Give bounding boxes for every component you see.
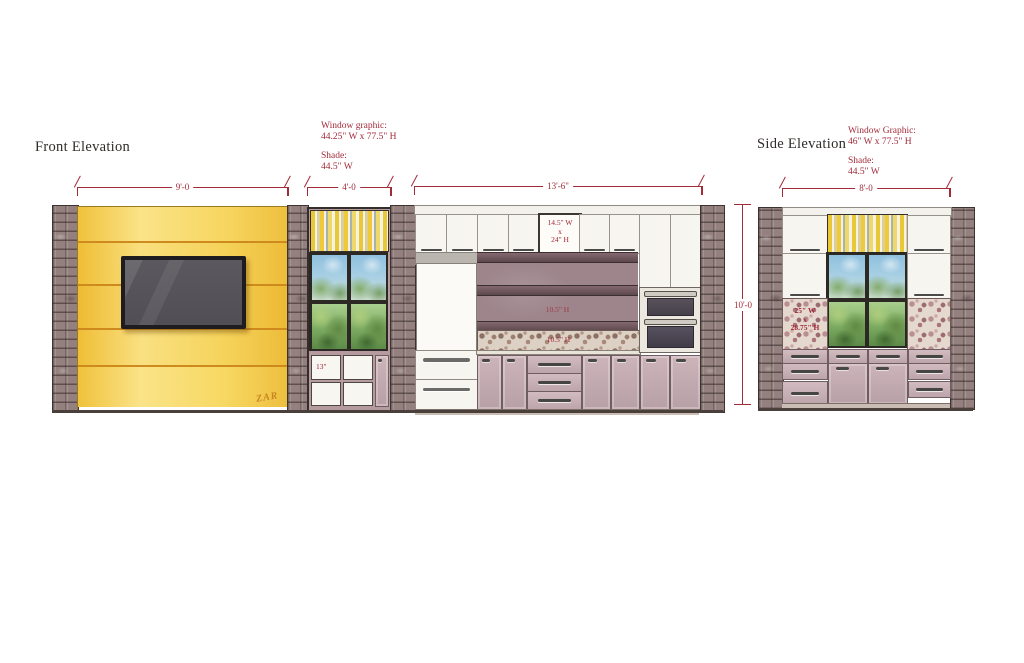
window-bay: 13" [307, 207, 394, 412]
stone-column [758, 207, 784, 410]
display-cabinet: 14.5" W x 24" H [538, 213, 582, 257]
mosaic-panel [907, 298, 951, 350]
upper-cabinet-door [782, 215, 828, 254]
stone-column [390, 205, 416, 413]
window-pane [311, 303, 348, 350]
floor-line [52, 410, 723, 413]
stone-column [700, 205, 725, 413]
base-drawer [527, 391, 582, 410]
base-drawer [782, 363, 828, 380]
tall-cabinet-door [670, 214, 702, 289]
cubby: 13" [311, 355, 341, 380]
base-cabinet-door [611, 355, 640, 410]
dimension-label: 8'-0 [855, 183, 877, 194]
yellow-plank-wall: ZAR [77, 206, 289, 412]
upper-cabinet-door [415, 214, 447, 254]
front-window-graphic-label: Window graphic: [321, 121, 397, 132]
shelf-board [477, 252, 638, 263]
tall-cabinet-door [639, 214, 671, 289]
window-pane [868, 301, 906, 347]
dimension-label: 10'-0 [732, 299, 754, 311]
window-pane [311, 254, 348, 301]
upper-cabinet-door [579, 214, 610, 254]
cubby-width-label: 13" [316, 363, 327, 372]
base-drawer [908, 381, 951, 398]
front-shade-label: Shade: [321, 151, 397, 162]
base-cabinet-door [502, 355, 527, 410]
base-drawer [908, 349, 951, 364]
elevation-drawing-sheet: Front Elevation Window graphic: 44.25" W… [0, 0, 1024, 663]
front-window-annotation: Window graphic: 44.25" W x 77.5" H Shade… [321, 121, 397, 173]
side-window-graphic-label: Window Graphic: [848, 126, 916, 137]
pebble-backsplash: 10.5" H [477, 330, 640, 352]
oven-handle [644, 319, 697, 325]
upper-cabinet-door [446, 214, 478, 254]
wall-mounted-tv [121, 256, 246, 329]
upper-cabinet-door [508, 214, 539, 254]
dimension-kitchen-width: 13'-6" [414, 186, 702, 187]
shelf-height-label: 10.5" H [477, 306, 638, 315]
window-pane [828, 301, 866, 347]
four-pane-window [309, 252, 388, 351]
oven-handle [644, 291, 697, 297]
base-cabinet-door [640, 355, 670, 410]
side-shade-label: Shade: [848, 156, 916, 167]
base-cabinet-door [582, 355, 611, 410]
double-oven-unit [639, 287, 702, 353]
floor-line [758, 408, 973, 411]
front-window-graphic-value: 44.25" W x 77.5" H [321, 132, 397, 143]
bay-side-door [375, 355, 389, 407]
cubby [343, 355, 373, 380]
display-cabinet-height-label: 24" H [540, 236, 580, 245]
stone-column [52, 205, 79, 413]
base-cabinet-door [828, 363, 868, 405]
cubby [343, 382, 373, 406]
side-shade-value: 44.5" W [848, 167, 916, 178]
shelf-board [477, 285, 638, 296]
dimension-media-wall-width: 9'-0 [77, 187, 288, 188]
dimension-window-bay-width: 4'-0 [307, 187, 391, 188]
oven-window [647, 326, 694, 348]
base-cabinet-door [477, 355, 502, 410]
upper-cabinet-door [907, 253, 951, 299]
fridge-drawer [415, 379, 478, 411]
base-drawer [828, 349, 868, 364]
window-pane [350, 254, 387, 301]
dimension-side-wall-height: 10'-0 [742, 205, 743, 404]
base-drawer [527, 355, 582, 374]
upper-cabinet-door [477, 214, 509, 254]
mosaic-height-label: 28.75" H [783, 324, 827, 333]
base-cabinet-door [868, 363, 908, 405]
base-drawer [782, 381, 828, 405]
base-drawer [782, 349, 828, 364]
upper-cabinet-door [609, 214, 640, 254]
cubby [311, 382, 341, 406]
front-shade-value: 44.5" W [321, 162, 397, 173]
front-elevation-title: Front Elevation [35, 139, 130, 156]
backsplash-height-label: 10.5" H [478, 336, 639, 345]
oven-window [647, 298, 694, 316]
window-pane [868, 254, 906, 299]
window-graphic-valance [827, 214, 908, 253]
window-pane [828, 254, 866, 299]
refrigerator-door [416, 263, 477, 352]
side-elevation-title: Side Elevation [757, 136, 846, 153]
open-shelf-area: 10.5" H [477, 252, 638, 330]
side-window-graphic-value: 46" W x 77.5" H [848, 137, 916, 148]
base-drawer [527, 373, 582, 392]
four-pane-window [826, 252, 907, 348]
stone-column [950, 207, 975, 410]
upper-cabinet-door [782, 253, 828, 299]
dimension-side-wall-width: 8'-0 [782, 188, 950, 189]
dimension-label: 9'-0 [172, 182, 194, 193]
window-graphic-valance [310, 210, 389, 252]
stone-column [287, 205, 309, 413]
base-drawer [908, 363, 951, 380]
kitchen-elevation: 14.5" W x 24" H 10.5" H [414, 205, 700, 412]
dimension-label: 4'-0 [338, 182, 360, 193]
window-pane [350, 303, 387, 350]
side-window-annotation: Window Graphic: 46" W x 77.5" H Shade: 4… [848, 126, 916, 178]
dimension-label: 13'-6" [543, 181, 573, 192]
upper-cabinet-door [907, 215, 951, 254]
base-cabinet-door [670, 355, 701, 410]
mosaic-panel: 25" W x 28.75" H [782, 298, 828, 350]
base-drawer [868, 349, 908, 364]
fridge-drawer [415, 350, 478, 380]
display-cubby-grid: 13" [311, 355, 373, 405]
